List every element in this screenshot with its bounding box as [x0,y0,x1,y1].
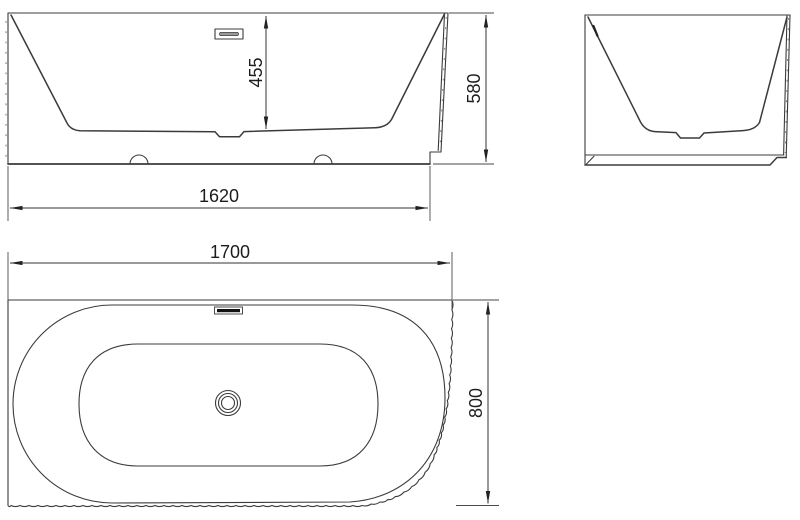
plan-fluted-edge [8,300,453,507]
side-slope-highlight [594,26,598,36]
plan-view: 1700 800 [8,242,499,507]
dim-label-basin-depth: 455 [246,57,266,87]
side-plinth-bevel [587,156,595,164]
dim-label-overall-length: 1700 [210,242,250,262]
dim-label-overall-width: 800 [466,388,486,418]
front-elevation-view: 455 580 1620 [6,13,494,221]
plan-overflow-slot-icon [217,309,240,312]
front-foot-arch-left [130,155,148,164]
front-right-outer-wall [441,13,448,152]
dim-label-overall-height: 580 [464,73,484,103]
side-basin-profile [588,17,787,138]
technical-drawing-canvas: 455 580 1620 [0,0,800,520]
front-right-inner-wall [438,14,444,151]
plan-rim-outline [13,305,445,503]
front-base-step [430,152,441,164]
overflow-slot-icon [220,32,239,35]
bathtub-drawing: 455 580 1620 [0,0,800,520]
front-foot-arch-right [314,155,332,164]
side-elevation-view [585,15,790,165]
drain-ring-inner [222,397,235,410]
dim-label-base-length: 1620 [199,186,239,206]
plan-basin-outline [79,344,378,466]
drain-icon [216,391,241,416]
side-bottom-edge [585,158,786,166]
